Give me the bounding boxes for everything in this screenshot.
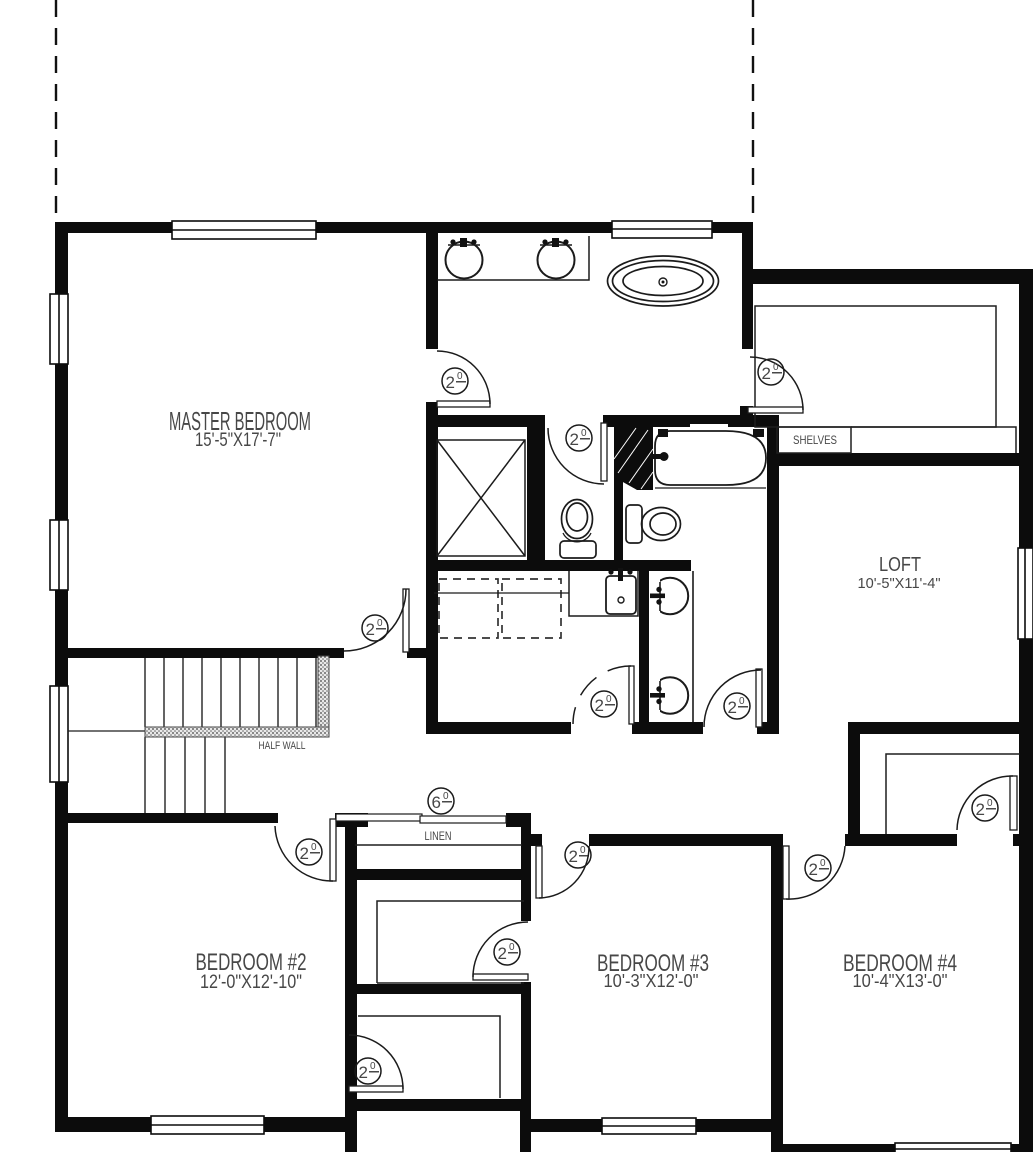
svg-text:2: 2 xyxy=(366,620,375,639)
svg-text:0: 0 xyxy=(509,942,515,953)
svg-text:2: 2 xyxy=(569,847,578,866)
svg-text:HALF WALL: HALF WALL xyxy=(259,740,306,752)
svg-text:0: 0 xyxy=(773,362,779,373)
svg-text:0: 0 xyxy=(987,798,993,809)
svg-text:10'-3"X12'-0": 10'-3"X12'-0" xyxy=(604,971,699,991)
svg-text:2: 2 xyxy=(570,430,579,449)
svg-text:15'-5"X17'-7": 15'-5"X17'-7" xyxy=(195,430,281,451)
svg-text:2: 2 xyxy=(595,696,604,715)
svg-text:10'-5"X11'-4": 10'-5"X11'-4" xyxy=(858,575,941,592)
svg-text:0: 0 xyxy=(457,371,463,382)
svg-text:2: 2 xyxy=(762,364,771,383)
svg-text:2: 2 xyxy=(976,800,985,819)
svg-text:2: 2 xyxy=(498,944,507,963)
svg-text:2: 2 xyxy=(728,698,737,717)
svg-text:0: 0 xyxy=(739,696,745,707)
svg-text:2: 2 xyxy=(359,1063,368,1082)
svg-text:0: 0 xyxy=(311,842,317,853)
svg-text:0: 0 xyxy=(377,618,383,629)
svg-text:0: 0 xyxy=(606,694,612,705)
svg-text:0: 0 xyxy=(443,791,449,802)
svg-text:12'-0"X12'-10": 12'-0"X12'-10" xyxy=(200,972,302,993)
svg-text:2: 2 xyxy=(809,860,818,879)
svg-text:0: 0 xyxy=(580,845,586,856)
svg-text:0: 0 xyxy=(820,858,826,869)
svg-text:0: 0 xyxy=(370,1061,376,1072)
svg-text:2: 2 xyxy=(446,373,455,392)
svg-text:LOFT: LOFT xyxy=(879,554,921,576)
svg-text:2: 2 xyxy=(300,844,309,863)
svg-text:0: 0 xyxy=(581,428,587,439)
svg-text:SHELVES: SHELVES xyxy=(793,433,837,447)
svg-text:10'-4"X13'-0": 10'-4"X13'-0" xyxy=(853,971,948,991)
svg-text:6: 6 xyxy=(432,793,441,812)
svg-text:LINEN: LINEN xyxy=(425,831,452,843)
